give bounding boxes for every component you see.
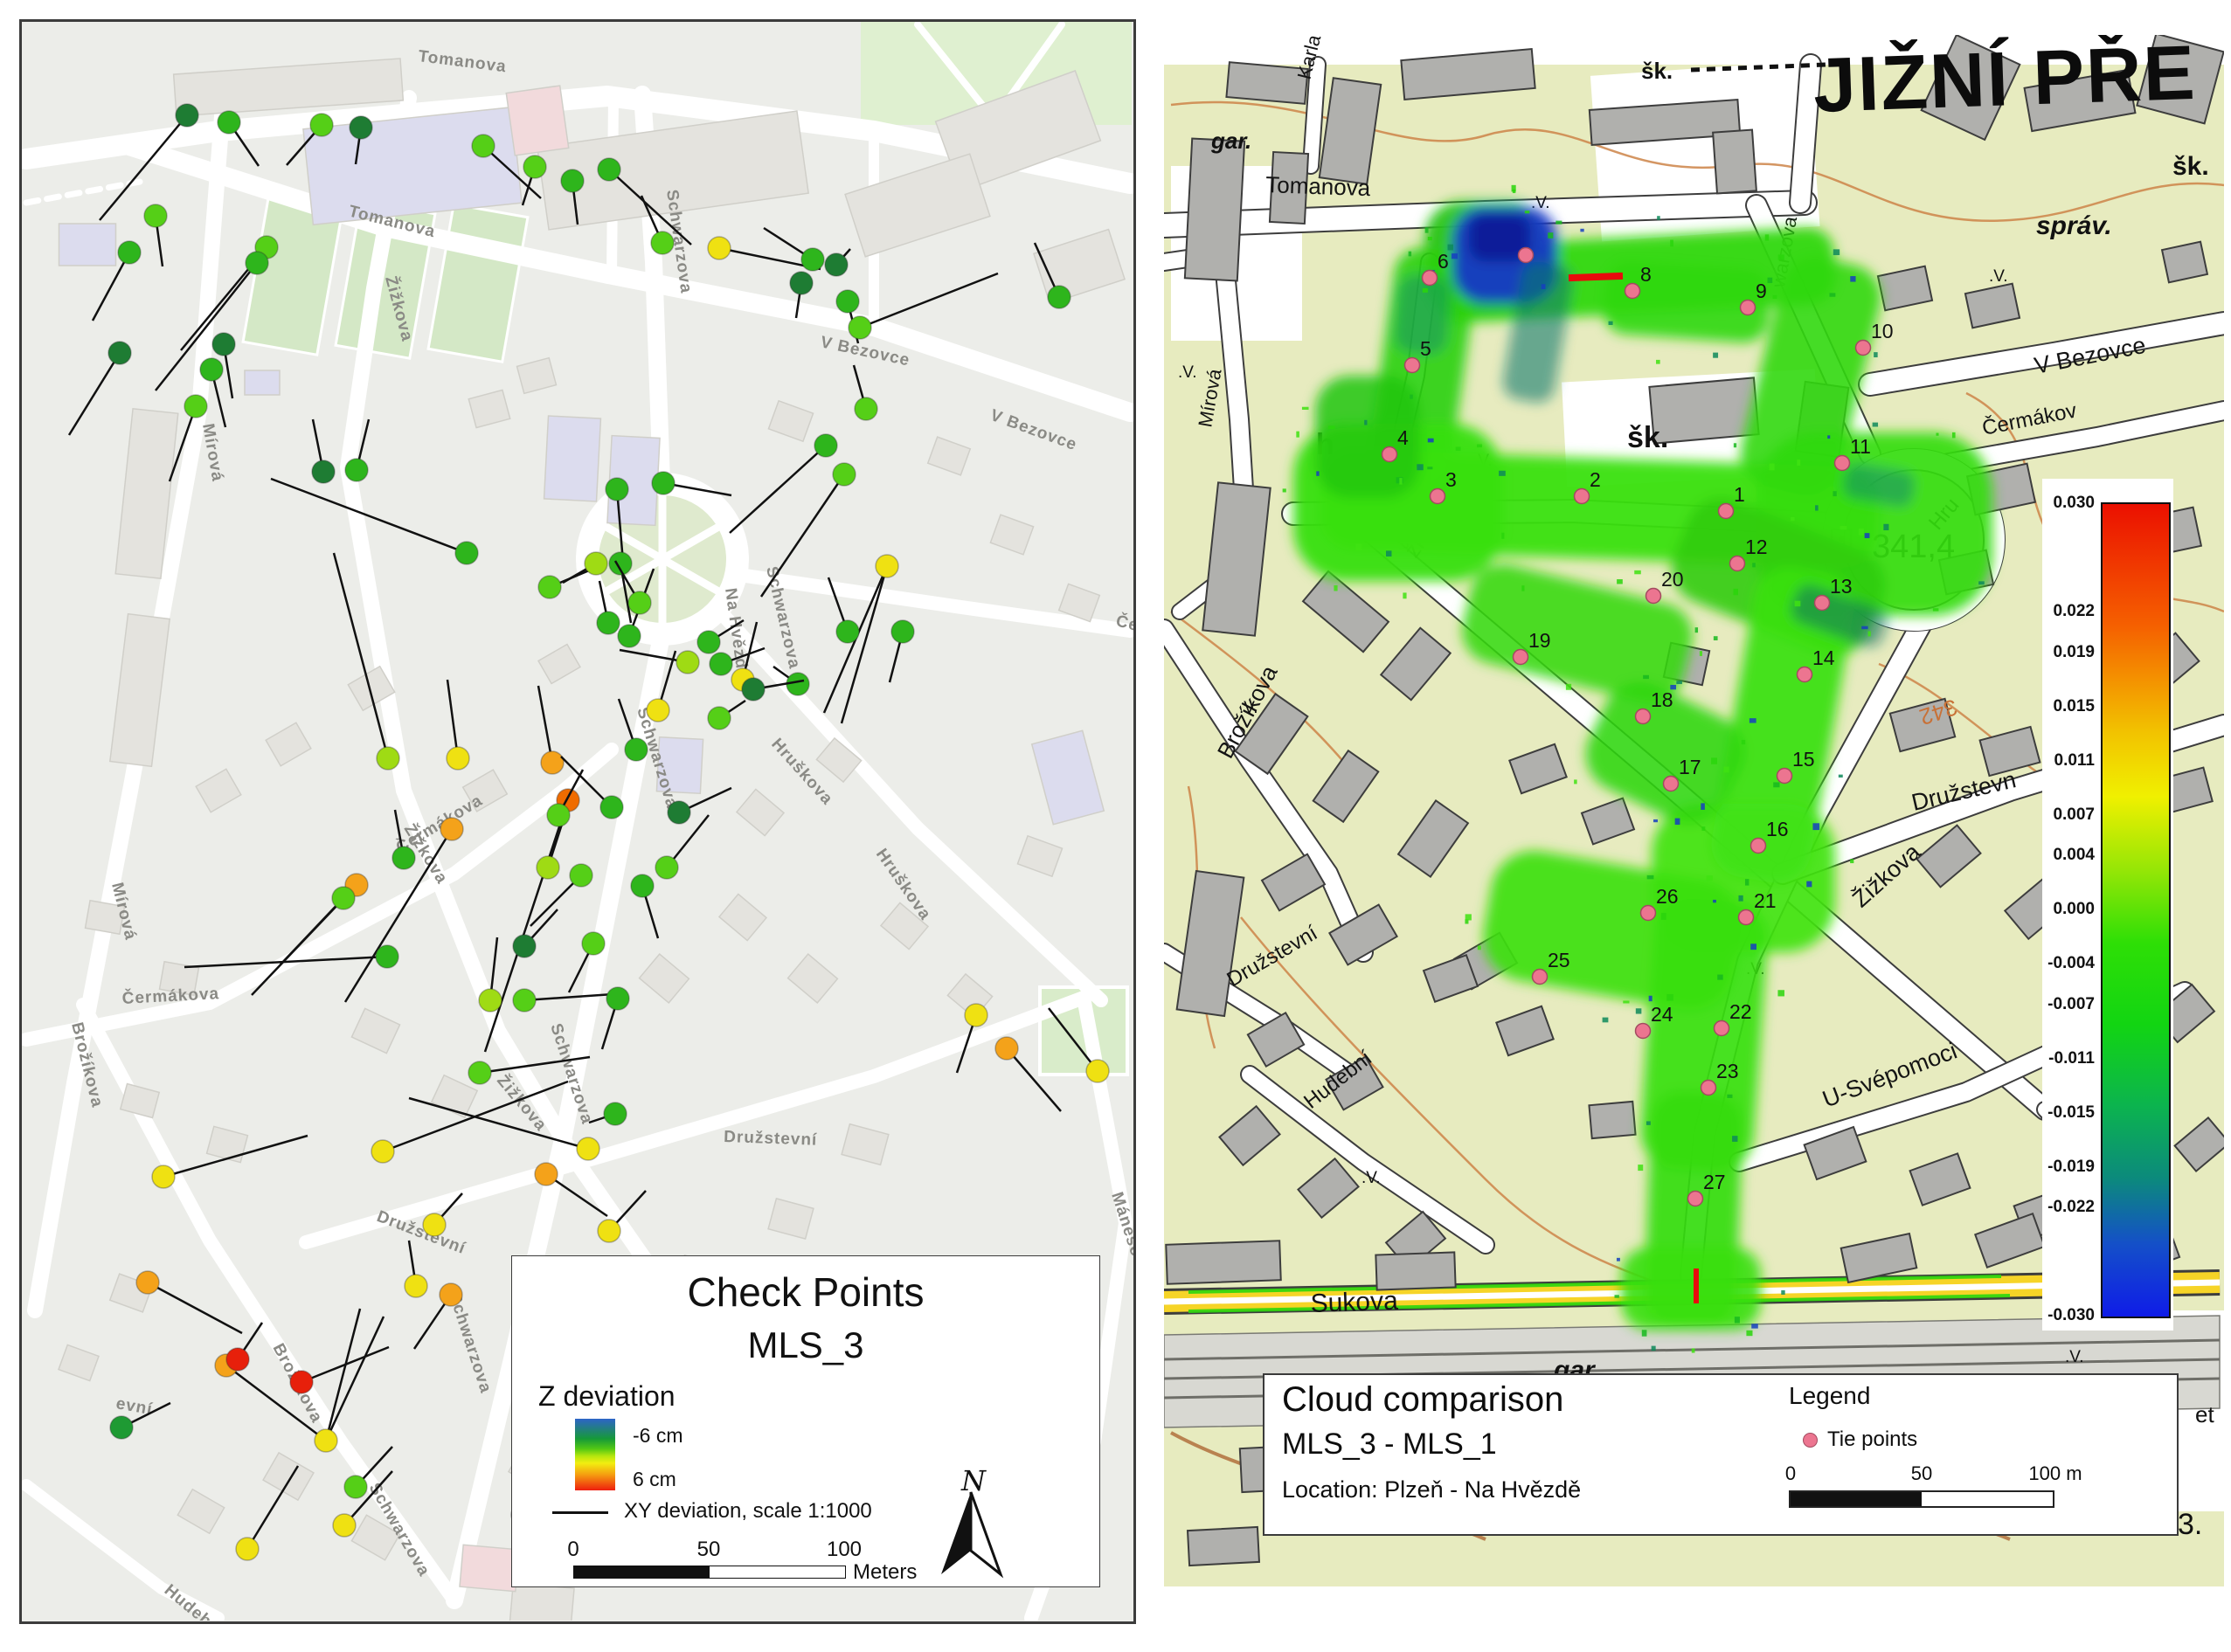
tie-point bbox=[1636, 709, 1651, 724]
colorbar-tick: -0.007 bbox=[2044, 995, 2095, 1014]
map-text: .V. bbox=[1361, 1169, 1381, 1187]
z-deviation-label: Z deviation bbox=[538, 1380, 676, 1413]
tie-point bbox=[1636, 1024, 1651, 1039]
check-point bbox=[110, 1416, 133, 1439]
tie-point bbox=[1730, 556, 1745, 571]
map-text: 3. bbox=[2178, 1508, 2202, 1541]
street-label: Družstevní bbox=[724, 1128, 818, 1150]
colorbar-tick: 0.022 bbox=[2044, 602, 2095, 621]
tie-point bbox=[1431, 489, 1445, 504]
z-min-label: -6 cm bbox=[633, 1424, 683, 1448]
colorbar-panel: 0.0300.0220.0190.0150.0110.0070.0040.000… bbox=[2042, 479, 2173, 1331]
check-point bbox=[647, 699, 669, 722]
check-point bbox=[604, 1102, 627, 1125]
check-point bbox=[212, 333, 235, 356]
map-text: šk. bbox=[2172, 152, 2209, 181]
scale-bar-filled bbox=[574, 1566, 710, 1578]
colorbar-tick: -0.011 bbox=[2044, 1049, 2095, 1068]
check-point bbox=[697, 631, 720, 653]
tie-point-number: 22 bbox=[1729, 1000, 1752, 1023]
check-point bbox=[965, 1004, 987, 1026]
right-map-subtitle: MLS_3 - MLS_1 bbox=[1282, 1427, 1497, 1462]
tie-point bbox=[1533, 970, 1548, 985]
map-text: gar. bbox=[1210, 128, 1251, 154]
scale-tick-100: 100 bbox=[827, 1538, 862, 1562]
check-point bbox=[855, 397, 877, 420]
tie-point-number: 12 bbox=[1745, 536, 1768, 558]
check-point bbox=[447, 747, 469, 770]
check-point bbox=[606, 478, 628, 501]
building bbox=[1375, 1252, 1455, 1289]
check-point bbox=[455, 542, 478, 564]
tie-point bbox=[1856, 341, 1871, 356]
check-point bbox=[833, 463, 856, 486]
check-point bbox=[655, 856, 678, 879]
tie-point-icon bbox=[1803, 1433, 1818, 1448]
right-scale-tick-0: 0 bbox=[1785, 1462, 1796, 1485]
check-point bbox=[708, 707, 731, 729]
right-scale-bar-filled bbox=[1791, 1492, 1922, 1506]
tie-point-number: 21 bbox=[1754, 889, 1777, 912]
left-legend-box: Check Points MLS_3 Z deviation -6 cm 6 c… bbox=[511, 1255, 1100, 1587]
check-point bbox=[537, 856, 559, 879]
tie-point bbox=[1719, 504, 1734, 519]
tie-point-number: 10 bbox=[1871, 320, 1894, 342]
check-point bbox=[200, 358, 223, 381]
check-point bbox=[226, 1348, 249, 1371]
tie-point-number: 2 bbox=[1590, 468, 1601, 491]
colorbar-tick: -0.030 bbox=[2044, 1306, 2095, 1325]
check-point bbox=[585, 552, 607, 575]
tie-point bbox=[1423, 271, 1438, 286]
legend-title: Legend bbox=[1789, 1382, 1870, 1410]
check-point bbox=[479, 989, 502, 1012]
map-sheet-title: JIŽNÍ PŘE bbox=[1812, 35, 2198, 128]
check-point bbox=[651, 232, 674, 254]
tie-point bbox=[1739, 910, 1754, 925]
check-point bbox=[377, 747, 399, 770]
tie-point-number: 6 bbox=[1438, 250, 1449, 273]
check-point bbox=[668, 801, 690, 824]
colorbar-tick: 0.019 bbox=[2044, 643, 2095, 662]
tie-point-number: 25 bbox=[1548, 949, 1570, 971]
colorbar-tick: -0.019 bbox=[2044, 1158, 2095, 1177]
colorbar-gradient bbox=[2101, 502, 2171, 1318]
check-point bbox=[332, 887, 355, 909]
building bbox=[2162, 242, 2207, 283]
check-point bbox=[801, 248, 824, 271]
tie-point bbox=[1777, 769, 1792, 784]
street-label: Tomanova bbox=[1265, 171, 1371, 201]
tie-point-number: 16 bbox=[1766, 818, 1789, 840]
check-point bbox=[600, 796, 623, 819]
xy-deviation-line-sample bbox=[552, 1511, 608, 1514]
tie-point-number: 20 bbox=[1661, 568, 1684, 591]
z-max-label: 6 cm bbox=[633, 1468, 676, 1491]
check-point bbox=[891, 620, 914, 643]
tie-point-number: 1 bbox=[1734, 483, 1745, 506]
colorbar-tick: 0.011 bbox=[2044, 751, 2095, 771]
left-map-title: Check Points bbox=[512, 1268, 1099, 1316]
map-text: .V. bbox=[1178, 363, 1197, 382]
check-point bbox=[523, 156, 546, 178]
check-point bbox=[152, 1165, 175, 1188]
tie-point-number: 15 bbox=[1792, 748, 1815, 771]
check-point bbox=[176, 104, 198, 127]
check-point bbox=[423, 1213, 446, 1236]
check-point bbox=[742, 678, 765, 701]
tie-point-number: 5 bbox=[1420, 337, 1431, 360]
scale-tick-0: 0 bbox=[567, 1538, 579, 1562]
check-point bbox=[315, 1429, 337, 1452]
map-text: šk. bbox=[1627, 421, 1668, 454]
building bbox=[59, 224, 116, 266]
tie-point bbox=[1815, 596, 1830, 611]
left-map-subtitle: MLS_3 bbox=[512, 1324, 1099, 1366]
check-point bbox=[836, 620, 859, 643]
tie-points-label: Tie points bbox=[1827, 1427, 1917, 1452]
check-point bbox=[598, 1220, 620, 1242]
colorbar-tick: 0.004 bbox=[2044, 846, 2095, 865]
building bbox=[1713, 130, 1756, 194]
scale-unit-label: Meters bbox=[853, 1560, 917, 1585]
building bbox=[1188, 1527, 1259, 1566]
check-point bbox=[628, 591, 651, 614]
check-point bbox=[376, 945, 398, 968]
scale-bar bbox=[573, 1566, 846, 1579]
right-scale-tick-100: 100 m bbox=[2028, 1462, 2082, 1485]
check-point bbox=[597, 612, 620, 634]
check-point bbox=[405, 1275, 427, 1297]
map-text: et bbox=[2195, 1401, 2214, 1427]
right-map-location: Location: Plzeň - Na Hvězdě bbox=[1282, 1476, 1581, 1503]
check-point bbox=[513, 935, 536, 957]
building bbox=[506, 86, 568, 156]
building bbox=[509, 1583, 574, 1621]
tie-point-number: 3 bbox=[1445, 468, 1457, 491]
tie-point bbox=[1701, 1081, 1716, 1096]
tie-point bbox=[1382, 447, 1397, 462]
z-deviation-color-ramp bbox=[575, 1419, 615, 1490]
tie-point bbox=[1646, 589, 1661, 604]
check-point bbox=[814, 434, 837, 457]
building bbox=[245, 370, 280, 395]
tie-point bbox=[1688, 1192, 1703, 1206]
tie-point-number: 8 bbox=[1640, 263, 1652, 286]
check-point bbox=[344, 1476, 367, 1498]
tie-point bbox=[1835, 456, 1850, 471]
tie-point bbox=[1798, 667, 1812, 682]
building bbox=[460, 1545, 519, 1591]
tie-point bbox=[1751, 839, 1766, 854]
check-point bbox=[513, 989, 536, 1012]
colorbar-tick: 0.000 bbox=[2044, 900, 2095, 919]
tie-point-number: 11 bbox=[1850, 435, 1871, 458]
check-point bbox=[468, 1061, 491, 1084]
check-point bbox=[582, 932, 605, 955]
colorbar-tick: 0.030 bbox=[2044, 494, 2095, 513]
check-point bbox=[310, 114, 333, 136]
tie-point-number: 24 bbox=[1651, 1003, 1673, 1026]
map-text: správ. bbox=[2036, 211, 2112, 240]
tie-point bbox=[1641, 906, 1656, 921]
check-point bbox=[108, 342, 131, 364]
tie-point bbox=[1405, 358, 1420, 373]
tie-point bbox=[1575, 489, 1590, 504]
map-text: .V. bbox=[1989, 267, 2008, 286]
check-point bbox=[625, 738, 648, 761]
tie-point bbox=[1741, 301, 1756, 315]
tie-point bbox=[1625, 284, 1640, 299]
map-text: .V. bbox=[1239, 699, 1258, 717]
check-point bbox=[541, 751, 564, 774]
tie-point-number: 4 bbox=[1397, 426, 1409, 449]
building bbox=[1166, 1241, 1280, 1284]
check-point bbox=[472, 135, 495, 157]
map-text: .V. bbox=[2065, 1348, 2084, 1366]
check-point bbox=[345, 459, 368, 481]
check-point bbox=[236, 1538, 259, 1560]
check-point bbox=[218, 111, 240, 134]
check-point bbox=[1048, 286, 1070, 308]
right-map-title: Cloud comparison bbox=[1282, 1380, 1563, 1420]
tie-point-number: 13 bbox=[1830, 575, 1853, 598]
check-point bbox=[392, 847, 415, 869]
tie-point-number: 9 bbox=[1756, 280, 1767, 302]
check-point bbox=[876, 555, 898, 577]
check-point bbox=[676, 651, 699, 674]
check-point bbox=[710, 653, 732, 675]
scale-tick-50: 50 bbox=[697, 1538, 721, 1562]
tie-point bbox=[1664, 777, 1679, 791]
building bbox=[1589, 1102, 1635, 1138]
check-point bbox=[1086, 1060, 1109, 1082]
tie-point-number: 26 bbox=[1656, 885, 1679, 908]
tie-point-number: 14 bbox=[1812, 646, 1835, 669]
colorbar-tick: -0.015 bbox=[2044, 1103, 2095, 1123]
tie-point bbox=[1514, 650, 1528, 665]
check-point bbox=[825, 253, 848, 276]
colorbar-tick: 0.007 bbox=[2044, 805, 2095, 825]
check-point bbox=[849, 316, 871, 339]
tie-point-number: 27 bbox=[1703, 1171, 1726, 1193]
check-point bbox=[144, 204, 167, 227]
right-info-box: Cloud comparison MLS_3 - MLS_1 Location:… bbox=[1263, 1373, 2179, 1536]
check-point bbox=[136, 1271, 159, 1294]
check-point bbox=[790, 272, 813, 294]
check-point bbox=[995, 1037, 1018, 1060]
page: { "left_map": { "legend": { "title": "Ch… bbox=[0, 0, 2231, 1652]
tie-point-number: 19 bbox=[1528, 629, 1551, 652]
colorbar-tick: -0.004 bbox=[2044, 954, 2095, 973]
tie-point bbox=[1715, 1021, 1729, 1036]
building bbox=[544, 416, 601, 501]
street-label: Sukova bbox=[1310, 1287, 1398, 1318]
map-text: šk. bbox=[1641, 58, 1673, 84]
check-point bbox=[440, 818, 463, 840]
check-point bbox=[118, 241, 141, 264]
tie-point-number: 23 bbox=[1716, 1060, 1739, 1082]
check-point bbox=[577, 1137, 599, 1160]
right-scale-bar bbox=[1789, 1490, 2054, 1508]
check-point bbox=[606, 987, 629, 1010]
check-point bbox=[350, 116, 372, 139]
check-point bbox=[246, 252, 268, 274]
right-scale-tick-50: 50 bbox=[1911, 1462, 1932, 1485]
building bbox=[1185, 139, 1244, 281]
check-point bbox=[184, 395, 207, 418]
check-point bbox=[371, 1140, 394, 1163]
check-point bbox=[440, 1283, 462, 1306]
check-point bbox=[333, 1514, 356, 1537]
check-point bbox=[631, 874, 654, 897]
tie-point-number: 17 bbox=[1679, 756, 1701, 778]
check-point bbox=[547, 804, 570, 826]
check-point bbox=[836, 290, 859, 313]
colorbar-tick: 0.015 bbox=[2044, 697, 2095, 716]
check-point bbox=[708, 237, 731, 259]
tie-point bbox=[1519, 248, 1534, 263]
check-point bbox=[312, 460, 335, 483]
check-point bbox=[538, 576, 561, 598]
north-arrow-label: N bbox=[961, 1464, 986, 1497]
check-point bbox=[535, 1163, 558, 1185]
check-point bbox=[618, 625, 641, 647]
colorbar-tick: -0.022 bbox=[2044, 1198, 2095, 1217]
xy-deviation-label: XY deviation, scale 1:1000 bbox=[624, 1499, 872, 1524]
check-point bbox=[570, 864, 592, 887]
tie-point-number: 18 bbox=[1651, 688, 1673, 711]
check-point bbox=[561, 169, 584, 192]
north-arrow: N bbox=[923, 1468, 1019, 1581]
check-point bbox=[598, 158, 620, 181]
check-point bbox=[290, 1371, 313, 1393]
check-point bbox=[652, 472, 675, 494]
